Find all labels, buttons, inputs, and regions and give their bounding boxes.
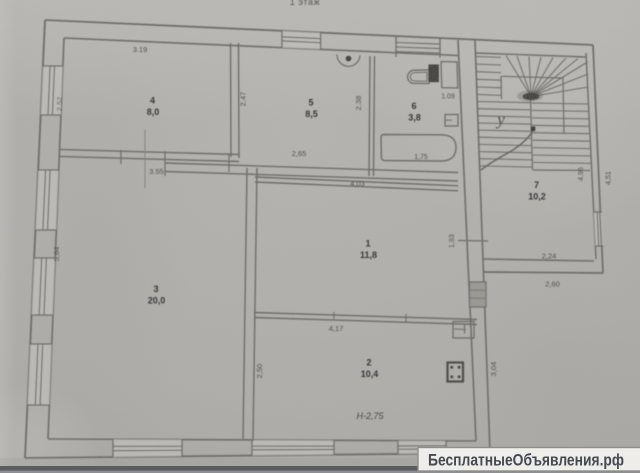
svg-text:3,04: 3,04 bbox=[489, 362, 498, 377]
svg-text:20,0: 20,0 bbox=[148, 296, 166, 306]
svg-text:1: 1 bbox=[365, 239, 370, 249]
svg-text:1 этаж: 1 этаж bbox=[290, 0, 321, 7]
svg-text:8,5: 8,5 bbox=[305, 109, 318, 119]
svg-text:2.52: 2.52 bbox=[55, 97, 64, 112]
svg-text:8,0: 8,0 bbox=[147, 107, 160, 117]
svg-text:2,24: 2,24 bbox=[542, 252, 557, 261]
svg-text:4,51: 4,51 bbox=[606, 171, 613, 185]
svg-text:4,96: 4,96 bbox=[578, 167, 585, 181]
svg-text:2.38: 2.38 bbox=[354, 96, 363, 111]
svg-text:1,75: 1,75 bbox=[414, 154, 428, 161]
svg-text:Н-2,75: Н-2,75 bbox=[356, 411, 384, 421]
svg-text:2: 2 bbox=[366, 358, 371, 368]
svg-text:3.55: 3.55 bbox=[149, 167, 164, 176]
svg-text:6: 6 bbox=[411, 101, 416, 111]
svg-text:1.09: 1.09 bbox=[441, 94, 455, 101]
svg-text:1,93: 1,93 bbox=[449, 234, 456, 248]
svg-text:3,8: 3,8 bbox=[408, 113, 421, 123]
svg-text:у: у bbox=[495, 110, 505, 129]
svg-text:5,64: 5,64 bbox=[52, 247, 61, 262]
svg-text:5: 5 bbox=[308, 98, 313, 108]
svg-text:4: 4 bbox=[150, 96, 155, 106]
svg-text:7: 7 bbox=[534, 180, 539, 190]
svg-text:2,50: 2,50 bbox=[255, 364, 264, 379]
svg-text:2,60: 2,60 bbox=[545, 280, 560, 289]
svg-text:4,03: 4,03 bbox=[350, 179, 365, 188]
svg-text:10,4: 10,4 bbox=[361, 369, 379, 379]
svg-text:3.19: 3.19 bbox=[133, 45, 148, 54]
svg-text:2.47: 2.47 bbox=[239, 92, 248, 107]
svg-text:10,2: 10,2 bbox=[528, 192, 546, 202]
svg-text:2,65: 2,65 bbox=[292, 149, 307, 158]
svg-text:11,8: 11,8 bbox=[360, 250, 377, 260]
svg-text:4,17: 4,17 bbox=[329, 324, 344, 333]
svg-text:3: 3 bbox=[153, 284, 158, 294]
svg-text:БесплатныеОбъявления.рф: БесплатныеОбъявления.рф bbox=[428, 451, 624, 470]
